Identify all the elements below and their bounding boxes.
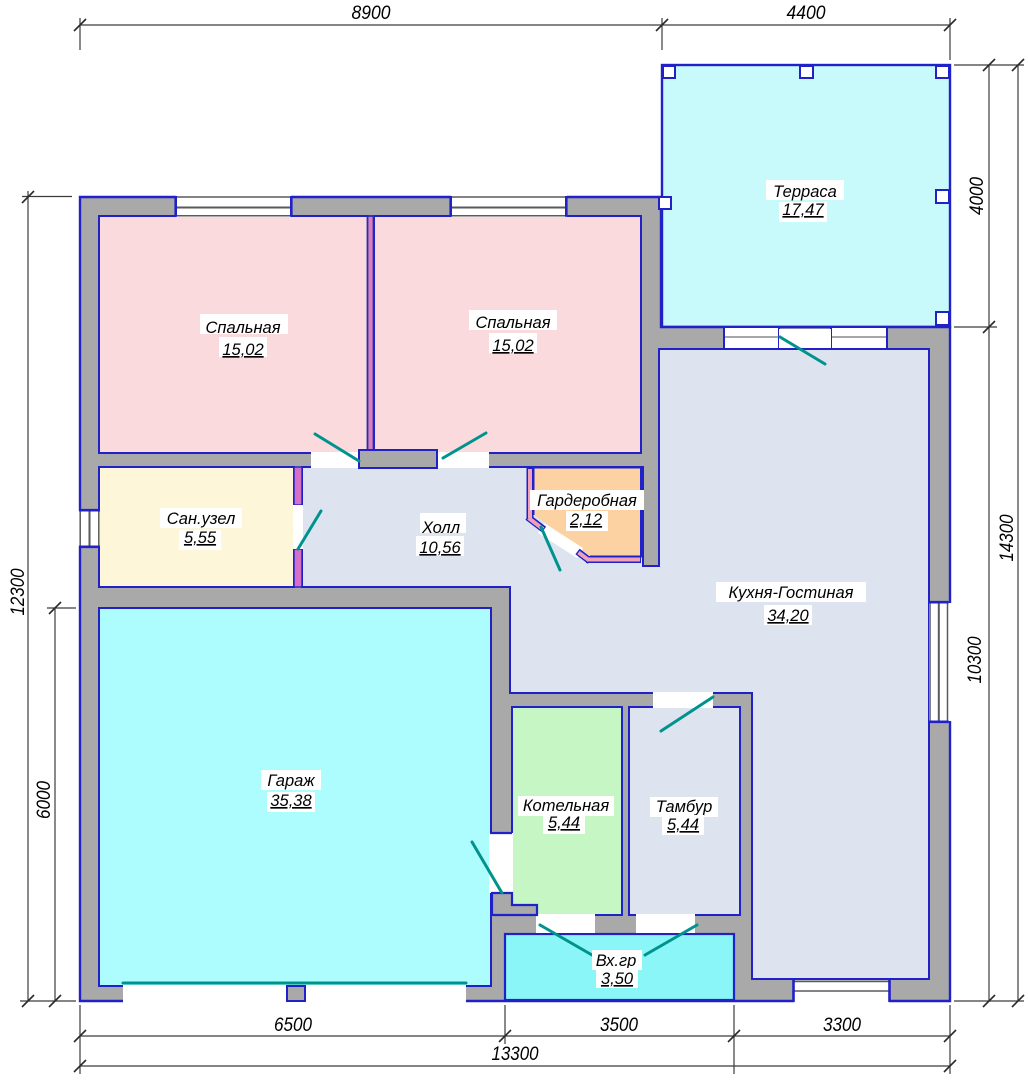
svg-text:Кухня-Гостиная: Кухня-Гостиная xyxy=(729,584,854,602)
svg-text:10300: 10300 xyxy=(964,636,986,683)
svg-text:14300: 14300 xyxy=(996,514,1018,561)
svg-text:4000: 4000 xyxy=(966,177,988,215)
svg-text:35,38: 35,38 xyxy=(270,792,312,810)
svg-text:Сан.узел: Сан.узел xyxy=(167,510,236,528)
svg-text:4400: 4400 xyxy=(787,2,826,24)
svg-text:15,02: 15,02 xyxy=(222,341,263,359)
svg-text:13300: 13300 xyxy=(492,1043,539,1065)
svg-text:Тамбур: Тамбур xyxy=(656,798,713,816)
svg-text:3300: 3300 xyxy=(823,1014,861,1036)
svg-text:Спальная: Спальная xyxy=(205,319,280,337)
svg-text:5,55: 5,55 xyxy=(184,529,217,547)
svg-text:17,47: 17,47 xyxy=(782,201,824,219)
svg-text:6000: 6000 xyxy=(33,781,55,819)
svg-text:5,44: 5,44 xyxy=(548,814,580,832)
svg-text:2,12: 2,12 xyxy=(569,511,602,529)
svg-text:3500: 3500 xyxy=(600,1014,638,1036)
svg-text:Гардеробная: Гардеробная xyxy=(537,492,637,510)
svg-text:3,50: 3,50 xyxy=(601,970,634,988)
svg-text:Холл: Холл xyxy=(421,519,460,537)
svg-text:8900: 8900 xyxy=(352,2,391,24)
svg-text:34,20: 34,20 xyxy=(767,607,809,625)
svg-text:5,44: 5,44 xyxy=(667,816,699,834)
svg-text:Вх.гр: Вх.гр xyxy=(596,952,637,970)
svg-text:15,02: 15,02 xyxy=(492,337,533,355)
svg-text:6500: 6500 xyxy=(274,1014,312,1036)
svg-text:Гараж: Гараж xyxy=(267,772,315,790)
svg-text:10,56: 10,56 xyxy=(419,539,461,557)
svg-text:Терраса: Терраса xyxy=(773,183,837,201)
svg-text:Котельная: Котельная xyxy=(523,797,610,815)
svg-text:Спальная: Спальная xyxy=(475,314,550,332)
svg-text:12300: 12300 xyxy=(7,568,29,615)
